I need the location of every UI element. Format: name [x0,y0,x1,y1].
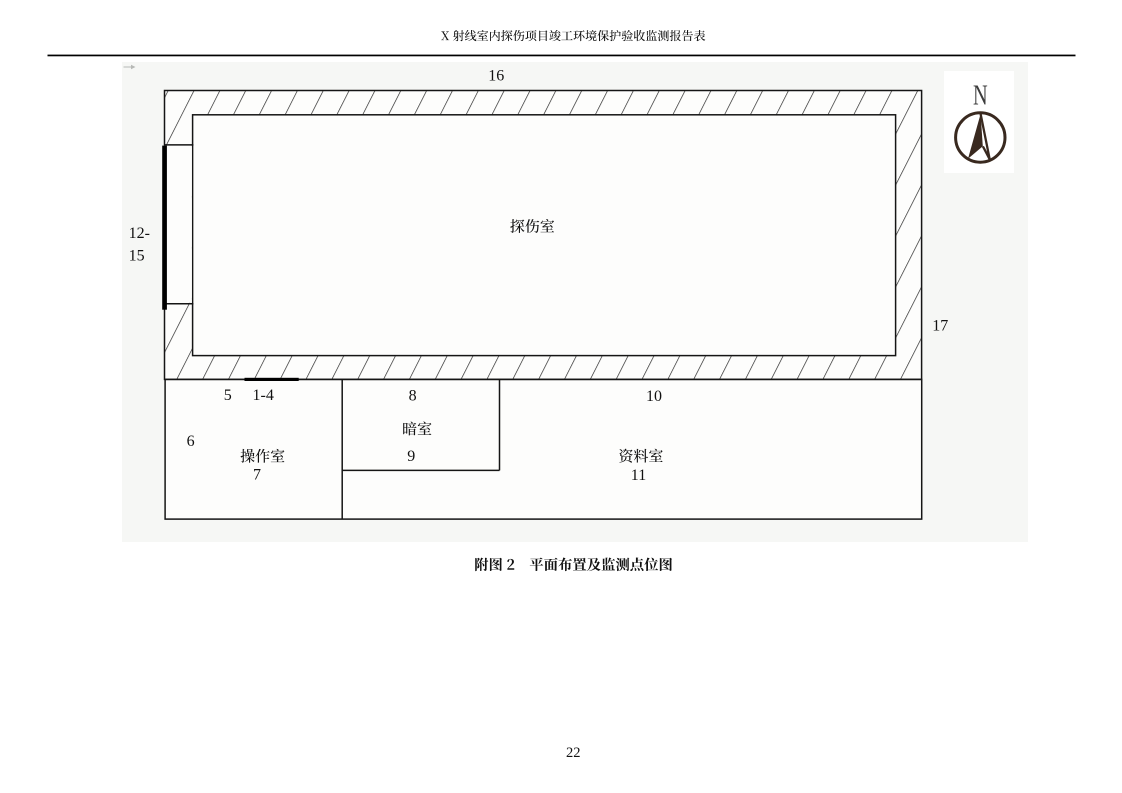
svg-text:12-: 12- [129,225,150,242]
svg-text:15: 15 [129,248,145,265]
svg-text:22: 22 [566,745,581,761]
svg-text:10: 10 [646,388,662,405]
svg-text:7: 7 [253,467,261,484]
svg-text:N: N [973,80,988,111]
svg-text:16: 16 [488,67,504,84]
svg-text:9: 9 [407,448,415,465]
svg-text:11: 11 [631,467,646,484]
svg-text:1-4: 1-4 [253,387,274,404]
svg-text:5: 5 [224,387,232,404]
svg-text:6: 6 [187,433,195,450]
svg-text:8: 8 [409,388,417,405]
svg-text:17: 17 [932,318,948,335]
